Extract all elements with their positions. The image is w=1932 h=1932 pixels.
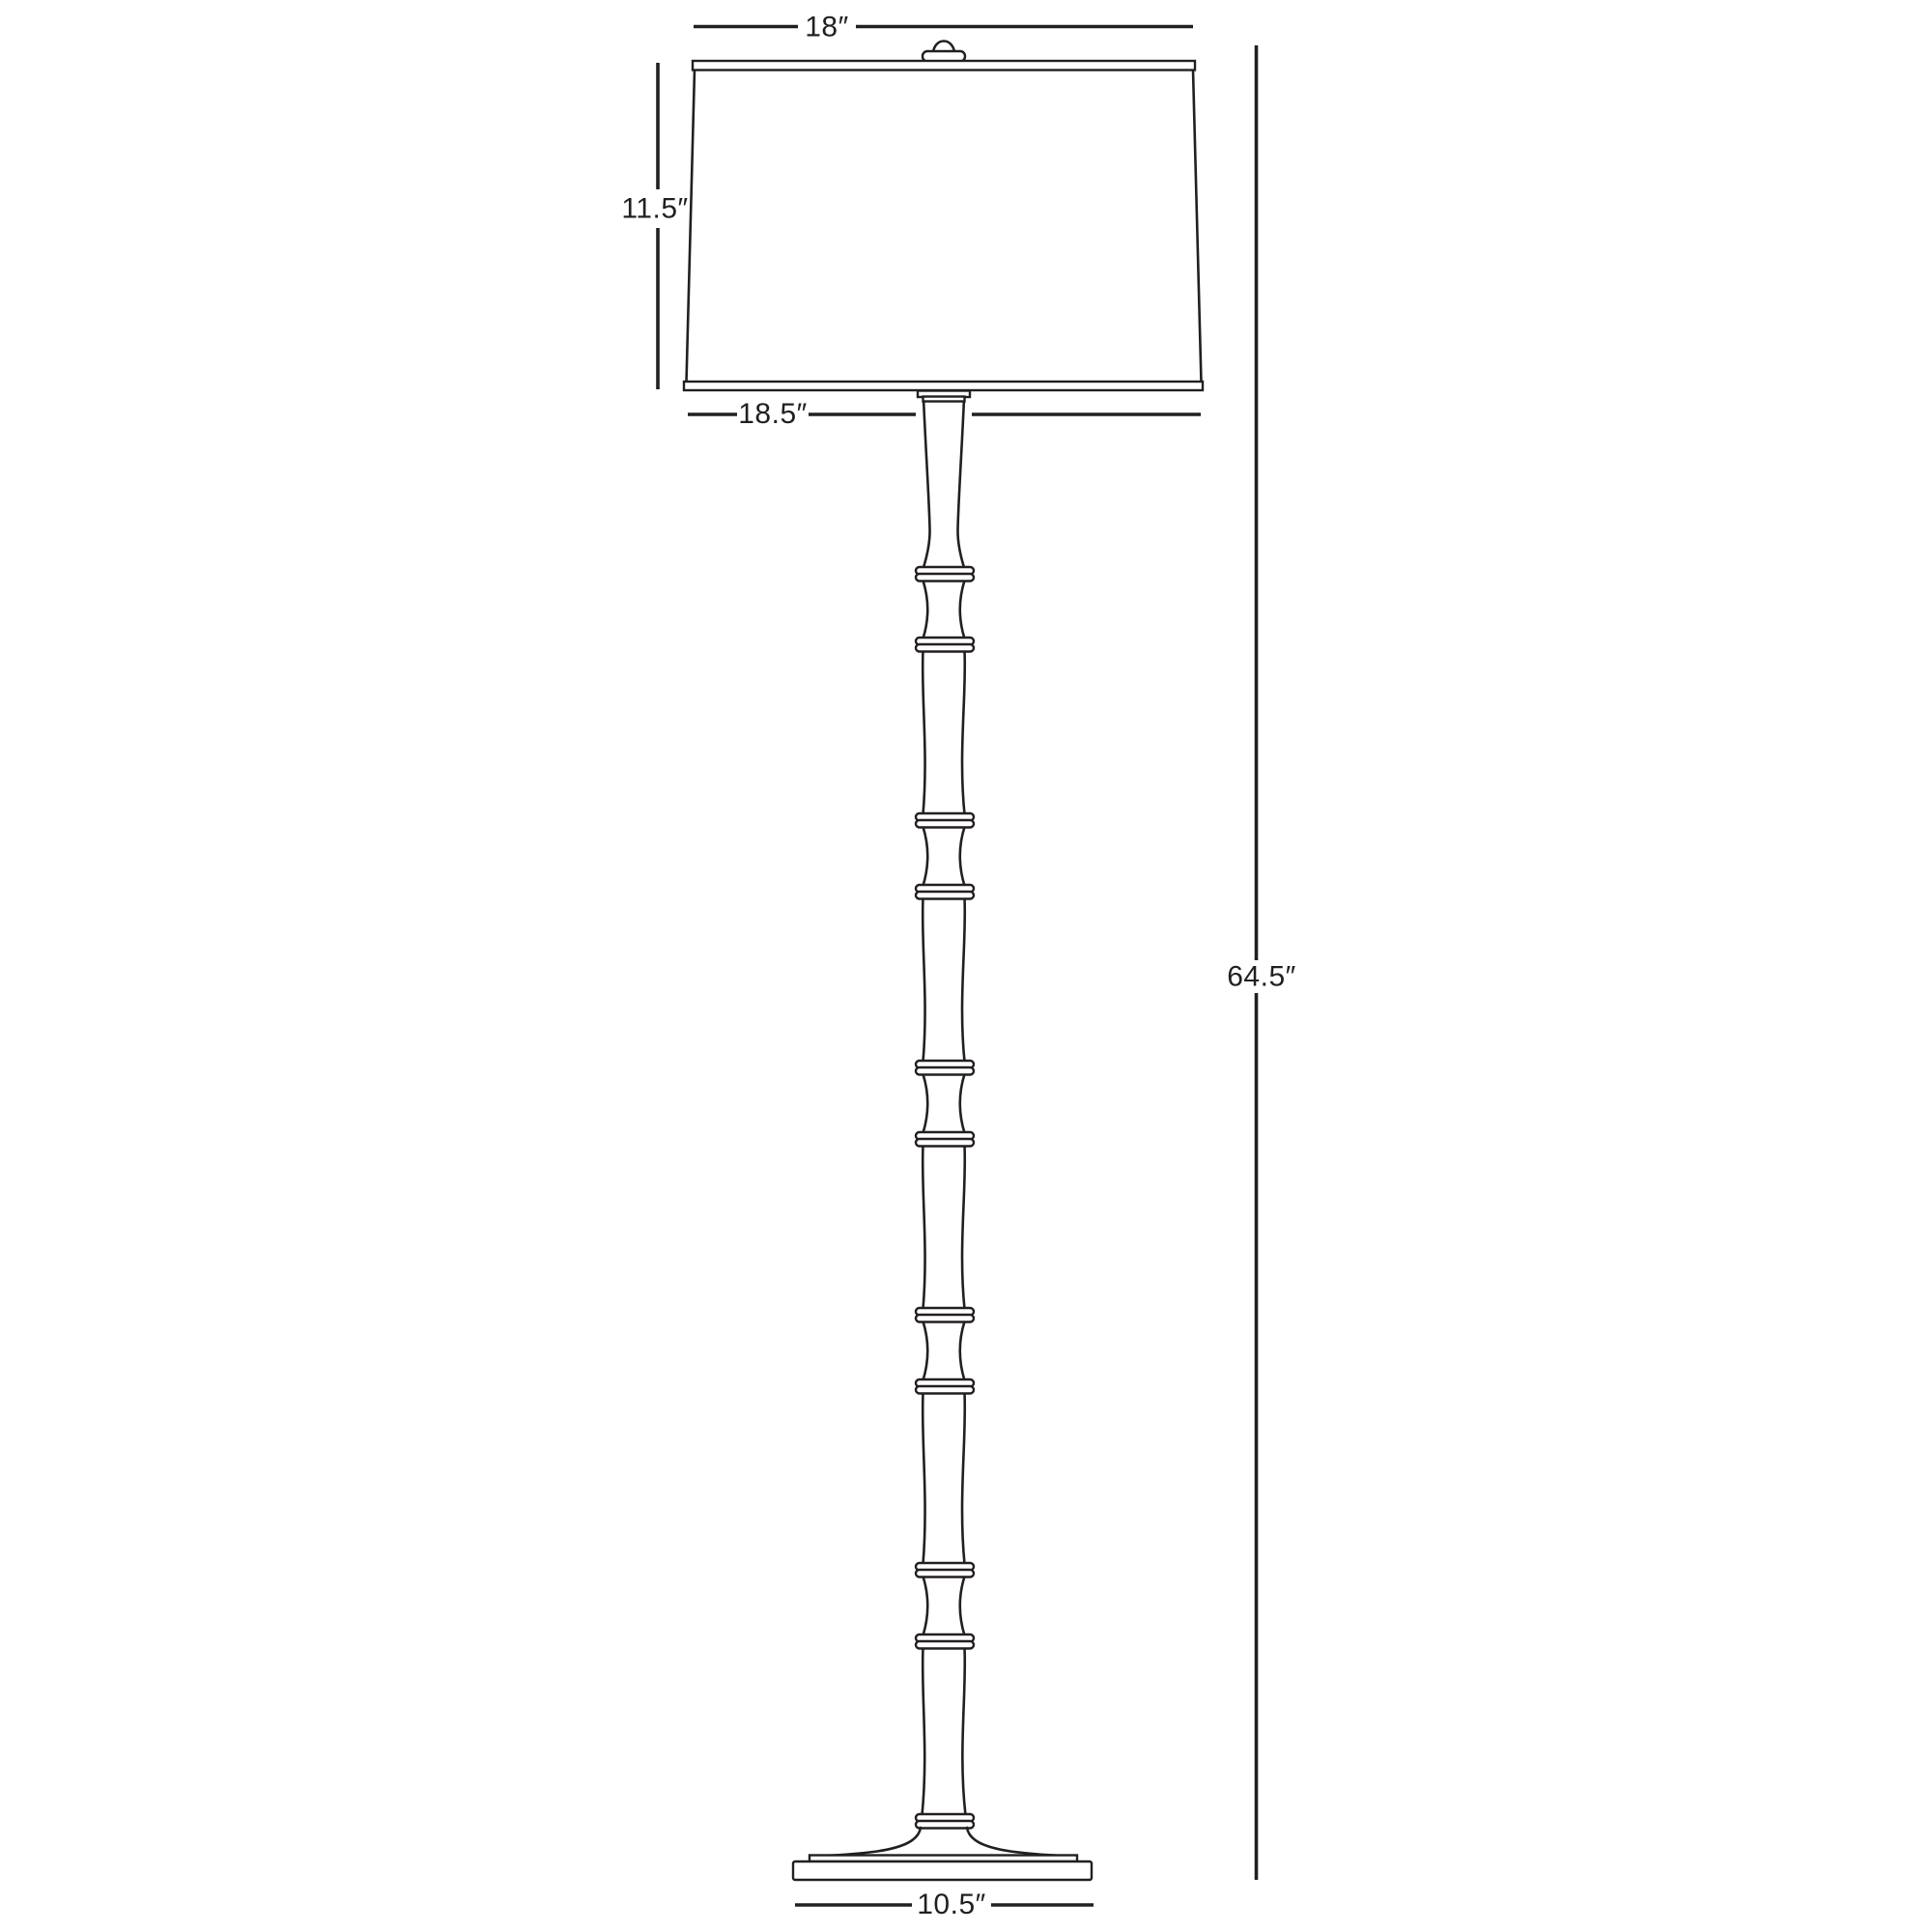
dim-shade-height: 11.5″: [621, 63, 688, 389]
bamboo-joint: [916, 1563, 974, 1577]
column-segment-edge: [960, 1577, 965, 1635]
shade-side-left: [687, 70, 696, 383]
bamboo-joint: [916, 813, 974, 828]
bamboo-joint: [916, 1308, 974, 1322]
dim-label-overall-height: 64.5″: [1227, 961, 1296, 993]
base-flare-left: [811, 1828, 921, 1857]
column-segment-edge: [923, 1648, 925, 1815]
bamboo-joint: [916, 1634, 974, 1649]
base-flare-right: [967, 1828, 1076, 1857]
dim-shade-bottom-width: 18.5″: [688, 398, 1201, 430]
lamp-base: [793, 1828, 1092, 1880]
column-segment-edge: [960, 827, 965, 886]
column-segment-edge: [923, 1321, 928, 1380]
bamboo-joint: [916, 567, 974, 582]
dim-label-base-width: 10.5″: [917, 1889, 986, 1920]
lamp-column: [916, 567, 974, 1829]
dim-label-shade-top-width: 18″: [805, 12, 849, 43]
bamboo-joint: [916, 885, 974, 899]
shade-bottom-band: [684, 382, 1203, 390]
column-segment-edge: [960, 1321, 965, 1380]
neck-edge-right: [957, 398, 964, 569]
lamp-dimension-diagram-page: 18″ 11.5″ 18.5″ 64.5″ 10.5″: [0, 0, 1932, 1932]
bamboo-joint: [916, 1132, 974, 1147]
column-segment-edge: [923, 581, 928, 639]
column-segment-edge: [923, 651, 924, 814]
lamp-finial: [923, 42, 965, 62]
column-segment-edge: [923, 1393, 924, 1564]
column-segment-edge: [923, 1577, 928, 1635]
neck-collar-lower: [923, 397, 965, 402]
column-segment-edge: [962, 1146, 965, 1309]
column-segment-edge: [962, 898, 965, 1062]
column-segment-edge: [923, 1074, 928, 1133]
column-segment-edge: [923, 898, 924, 1062]
dim-overall-height: 64.5″: [1227, 45, 1296, 1880]
shade-side-right: [1193, 70, 1202, 383]
column-segment-edge: [962, 651, 965, 814]
dim-label-shade-height: 11.5″: [621, 193, 688, 225]
column-segment-edge: [960, 1074, 965, 1133]
dim-base-width: 10.5″: [795, 1889, 1094, 1920]
neck-edge-left: [923, 398, 930, 569]
dim-shade-top-width: 18″: [694, 12, 1193, 43]
column-segment-edge: [923, 827, 928, 886]
bamboo-joint: [916, 1379, 974, 1394]
bamboo-joint: [916, 1814, 974, 1829]
column-segment-edge: [962, 1648, 965, 1815]
lamp-dimension-diagram: 18″ 11.5″ 18.5″ 64.5″ 10.5″: [0, 0, 1932, 1932]
lamp-shade: [684, 61, 1203, 390]
column-segment-edge: [960, 581, 965, 639]
lamp-neck: [918, 391, 970, 570]
bamboo-joint: [916, 1061, 974, 1075]
dim-label-shade-bottom-width: 18.5″: [738, 398, 808, 430]
column-segment-edge: [923, 1146, 924, 1309]
column-segment-edge: [962, 1393, 965, 1564]
bamboo-joint: [916, 638, 974, 652]
base-plinth: [793, 1861, 1092, 1880]
shade-top-band: [693, 61, 1195, 71]
